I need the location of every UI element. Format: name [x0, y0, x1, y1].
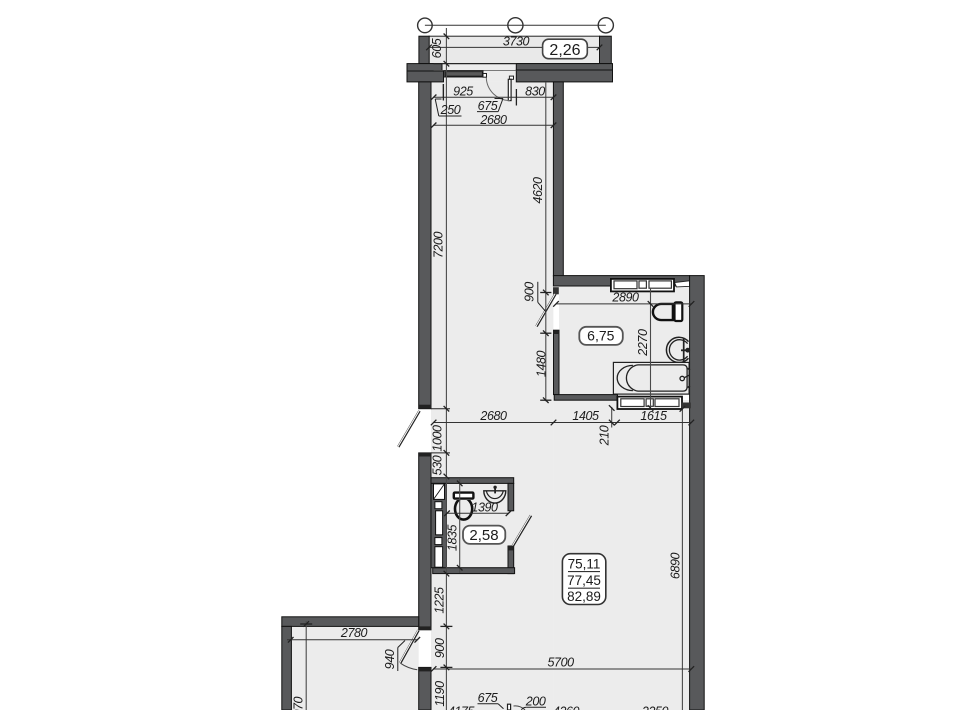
svg-text:605: 605 — [430, 38, 444, 58]
svg-text:1480: 1480 — [534, 350, 548, 377]
svg-text:2070: 2070 — [292, 696, 306, 710]
svg-text:675: 675 — [478, 99, 498, 113]
svg-text:7200: 7200 — [432, 231, 446, 258]
svg-text:250: 250 — [440, 103, 461, 117]
svg-text:4260: 4260 — [553, 705, 580, 710]
svg-text:925: 925 — [453, 84, 473, 98]
svg-text:2270: 2270 — [636, 329, 650, 357]
svg-text:2250: 2250 — [641, 705, 669, 710]
svg-text:2680: 2680 — [479, 409, 507, 423]
svg-text:530: 530 — [431, 455, 445, 475]
svg-text:830: 830 — [525, 84, 545, 98]
svg-text:210: 210 — [598, 425, 612, 446]
svg-text:3730: 3730 — [503, 35, 530, 49]
svg-text:1190: 1190 — [433, 681, 447, 707]
svg-text:5700: 5700 — [547, 656, 574, 670]
svg-text:675: 675 — [478, 691, 498, 705]
svg-text:2680: 2680 — [479, 113, 507, 127]
svg-text:940: 940 — [383, 649, 397, 669]
svg-text:200: 200 — [525, 695, 546, 709]
svg-text:75,11: 75,11 — [568, 556, 601, 571]
svg-text:1835: 1835 — [446, 524, 460, 551]
svg-text:1405: 1405 — [572, 409, 599, 423]
svg-text:900: 900 — [433, 638, 447, 658]
svg-text:1000: 1000 — [431, 425, 445, 452]
svg-text:2,26: 2,26 — [549, 42, 580, 59]
svg-text:4175: 4175 — [448, 705, 475, 710]
svg-text:6890: 6890 — [669, 552, 683, 579]
svg-text:1615: 1615 — [640, 409, 667, 423]
svg-text:6,75: 6,75 — [587, 328, 614, 344]
svg-text:82,89: 82,89 — [567, 589, 601, 604]
svg-text:2780: 2780 — [340, 626, 368, 640]
svg-text:900: 900 — [523, 282, 537, 302]
svg-text:2890: 2890 — [611, 291, 639, 305]
svg-text:2,58: 2,58 — [469, 527, 498, 544]
svg-text:1225: 1225 — [433, 587, 447, 614]
svg-text:4620: 4620 — [531, 177, 545, 204]
svg-text:77,45: 77,45 — [567, 573, 601, 588]
svg-text:1390: 1390 — [471, 500, 498, 514]
